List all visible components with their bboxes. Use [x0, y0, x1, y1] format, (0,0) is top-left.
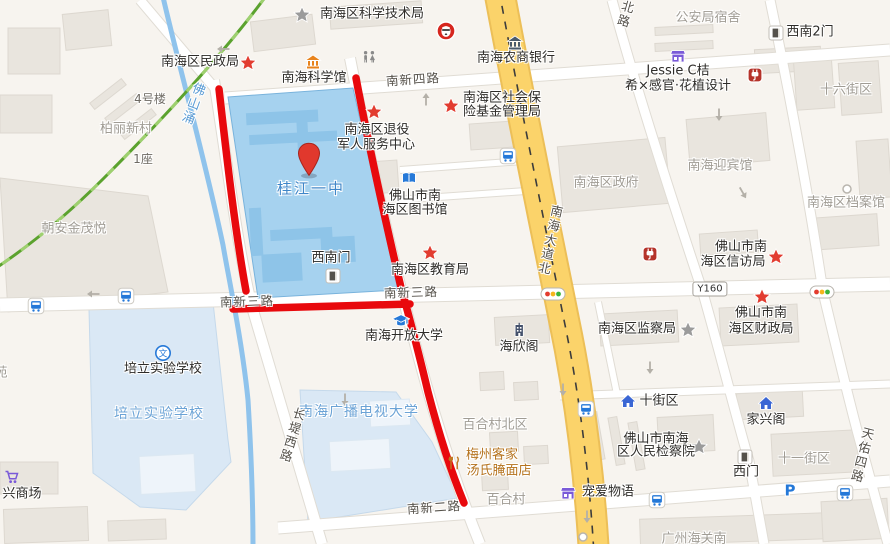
- poi-label: 培立实验学校: [114, 406, 204, 422]
- poi-label[interactable]: 南海区科学技术局: [320, 8, 424, 23]
- poi-label[interactable]: 南海区监察局: [598, 323, 676, 338]
- bus-icon[interactable]: [500, 148, 517, 165]
- area-label: 4号楼: [134, 93, 166, 107]
- arrow-icon: [422, 92, 431, 107]
- star-red-icon[interactable]: [240, 55, 257, 72]
- poi-label[interactable]: 西南门: [311, 252, 350, 267]
- poi-label[interactable]: 海区财政局: [728, 323, 793, 338]
- restroom-icon[interactable]: [361, 51, 377, 64]
- poi-label[interactable]: 佛山市南: [735, 307, 787, 322]
- arrow-icon: [216, 45, 231, 54]
- map-canvas[interactable]: 文P南海区科学技术局公安局宿舍西南2门南海区民政局南海农商银行Jessie C桔…: [0, 0, 890, 544]
- poi-label[interactable]: 南海科学馆: [281, 72, 346, 87]
- area-label: 公安局宿舍: [675, 12, 740, 27]
- bus-icon[interactable]: [28, 298, 45, 315]
- poi-label[interactable]: 军人服务中心: [337, 139, 415, 154]
- arrow-icon: [559, 383, 568, 398]
- traffic-icon: [540, 287, 566, 302]
- building-block: [0, 95, 52, 133]
- area-label: 百合村: [486, 494, 525, 509]
- building-block: [514, 381, 539, 400]
- poi-label[interactable]: 佛山市南: [715, 241, 767, 256]
- area-label: 十六街区: [820, 84, 872, 99]
- poi-label[interactable]: 汤氏腌面店: [466, 465, 531, 480]
- museum-icon[interactable]: [305, 54, 322, 70]
- svg-text:文: 文: [158, 348, 167, 359]
- road: [140, 0, 218, 92]
- poi-label[interactable]: 梅州客家: [466, 449, 518, 464]
- selected-location-pin[interactable]: [294, 141, 324, 179]
- poi-label[interactable]: 西门: [733, 466, 759, 481]
- road-label: 南新三路: [384, 285, 438, 301]
- door-icon[interactable]: [768, 25, 784, 41]
- bus-icon[interactable]: [837, 485, 854, 502]
- poi-label[interactable]: 希×感官·花植设计: [625, 80, 731, 95]
- campus-building: [139, 454, 196, 495]
- cart-icon[interactable]: [4, 469, 21, 485]
- area-label: 朝安金茂悦: [41, 223, 106, 238]
- star-red-icon[interactable]: [768, 249, 785, 266]
- parking-icon[interactable]: P: [785, 481, 796, 500]
- building-block: [8, 28, 60, 74]
- poi-label[interactable]: 南海区教育局: [391, 264, 469, 279]
- bank-icon[interactable]: [507, 35, 524, 51]
- building-block: [524, 445, 549, 464]
- area-label: 1座: [133, 153, 153, 167]
- door-icon[interactable]: [325, 268, 341, 284]
- house-icon[interactable]: [620, 394, 636, 409]
- road-label: 南新三路: [220, 294, 274, 310]
- building-block: [108, 519, 167, 541]
- poi-label[interactable]: Jessie C桔: [646, 65, 709, 80]
- arrow-icon: [583, 510, 592, 525]
- poi-label[interactable]: 海欣阁: [499, 341, 538, 356]
- area-label: 百合村北区: [462, 419, 527, 434]
- bus-icon[interactable]: [578, 401, 595, 418]
- area-label: 广州海关南: [661, 533, 726, 544]
- shop-icon[interactable]: [670, 48, 687, 64]
- building-block: [90, 79, 126, 110]
- arrow-icon: [646, 361, 655, 376]
- area-label: 柏丽新村: [100, 123, 152, 138]
- area-label: 十一街区: [778, 453, 830, 468]
- dot-icon: [842, 184, 853, 195]
- door-icon[interactable]: [737, 449, 753, 465]
- campus-building: [329, 438, 390, 471]
- star-gray-icon[interactable]: [680, 322, 697, 339]
- poi-label[interactable]: 区人民检察院: [617, 446, 695, 461]
- poi-label[interactable]: 南海开放大学: [365, 330, 443, 345]
- area-label: 南海区档案馆: [807, 197, 885, 212]
- plug-icon[interactable]: [642, 246, 658, 262]
- poi-label[interactable]: 险基金管理局: [463, 106, 541, 121]
- building-block: [480, 371, 505, 390]
- plug-icon[interactable]: [747, 67, 763, 83]
- house-icon[interactable]: [758, 396, 774, 411]
- building-block: [856, 139, 890, 199]
- poi-label[interactable]: 培立实验学校: [124, 363, 202, 378]
- poi-label: 南海广播电视大学: [299, 404, 419, 420]
- traffic-icon: [809, 285, 835, 300]
- poi-label[interactable]: 南海农商银行: [477, 52, 555, 67]
- area-label: 南海迎宾馆: [687, 160, 752, 175]
- poi-label[interactable]: 兴商场: [2, 488, 41, 503]
- poi-label[interactable]: 南海区退役: [344, 124, 409, 139]
- dot-icon: [578, 532, 589, 543]
- road-number-badge: Y160: [692, 282, 727, 297]
- bus-icon[interactable]: [118, 288, 135, 305]
- arrow-icon: [715, 108, 724, 123]
- star-red-icon[interactable]: [754, 289, 771, 306]
- star-red-icon[interactable]: [443, 98, 460, 115]
- building-block: [62, 10, 112, 51]
- building-block: [3, 507, 88, 544]
- wen-icon[interactable]: 文: [155, 345, 172, 362]
- star-red-icon[interactable]: [422, 245, 439, 262]
- poi-label[interactable]: 海区图书馆: [382, 204, 447, 219]
- gradcap-icon[interactable]: [392, 314, 410, 329]
- poi-label[interactable]: 家兴阁: [746, 414, 785, 429]
- shop-icon[interactable]: [560, 485, 577, 501]
- library-icon[interactable]: [400, 170, 418, 186]
- building-icon[interactable]: [512, 322, 527, 338]
- area-label: 苑: [0, 367, 8, 382]
- poi-label[interactable]: 南海区民政局: [161, 56, 239, 71]
- arrow-icon: [86, 290, 101, 299]
- star-gray-icon[interactable]: [294, 7, 311, 24]
- star-red-icon[interactable]: [366, 104, 383, 121]
- kfc-icon[interactable]: [436, 21, 456, 41]
- poi-label[interactable]: 十街区: [639, 395, 678, 410]
- restaurant-icon[interactable]: [447, 456, 462, 471]
- poi-label[interactable]: 海区信访局: [700, 256, 765, 271]
- area-label: 南海区政府: [573, 177, 638, 192]
- bus-icon[interactable]: [649, 492, 666, 509]
- poi-label[interactable]: 西南2门: [786, 26, 833, 41]
- poi-label[interactable]: 宠爱物语: [582, 486, 634, 501]
- poi-label[interactable]: 桂江一中: [277, 180, 345, 197]
